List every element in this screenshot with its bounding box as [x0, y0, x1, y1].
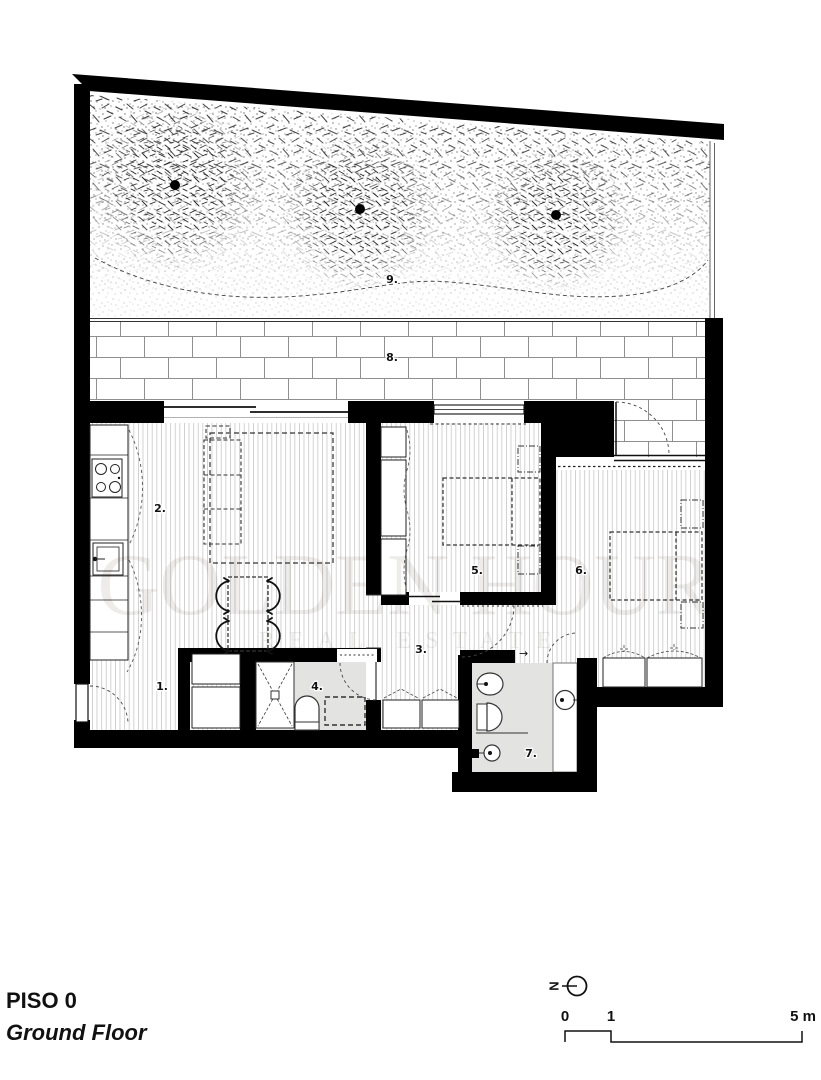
pier-c — [524, 401, 558, 423]
room-label-3: 3. — [415, 643, 427, 656]
room-label-7: 7. — [525, 747, 537, 760]
shower-tray — [256, 662, 294, 728]
toilet — [477, 703, 502, 731]
title-floor-name: Ground Floor — [6, 1020, 148, 1045]
bedroom6-terrace-door — [614, 456, 705, 461]
room-label-4: 4. — [311, 680, 323, 693]
floor-plan-page: → GOLDEN HOUR REAL ESTATE 1. 2. 3. 4. 5.… — [0, 0, 821, 1080]
pier-a — [88, 401, 164, 423]
wall-closet-left — [178, 648, 190, 730]
outer-wall-right — [705, 318, 723, 707]
pier-b — [348, 401, 434, 423]
bath7-wall-right — [577, 658, 597, 792]
scale-tick-0: 0 — [561, 1008, 569, 1025]
title-floor-code: PISO 0 — [6, 988, 77, 1013]
room-label-2: 2. — [154, 502, 166, 515]
scale-tick-1: 1 — [607, 1008, 615, 1025]
room-label-5: 5. — [471, 564, 483, 577]
bath7-wall-bottom — [452, 772, 597, 792]
outer-wall-left — [74, 84, 90, 684]
toilet — [295, 696, 319, 730]
scale-tick-5: 5 m — [790, 1008, 816, 1025]
pier-block — [556, 401, 614, 457]
outer-wall-bottom — [74, 730, 460, 748]
living-sliding-door — [164, 407, 348, 412]
room-label-9: 9. — [386, 273, 398, 286]
tree-icon — [170, 180, 180, 190]
floor-plan-svg: → GOLDEN HOUR REAL ESTATE 1. 2. 3. 4. 5.… — [0, 0, 821, 1080]
room-label-1: 1. — [156, 680, 168, 693]
room6-wall-bottom — [595, 687, 723, 707]
north-arrow: N — [547, 977, 587, 996]
wall-living-hall-lower — [366, 700, 381, 730]
scale-bar-line — [565, 1031, 802, 1042]
north-label: N — [547, 981, 562, 990]
entry-closet — [192, 654, 240, 728]
room-label-6: 6. — [575, 564, 587, 577]
scale-bar: 0 1 5 m — [561, 1008, 816, 1042]
entrance-door-leaf — [76, 684, 88, 722]
title-block: PISO 0 Ground Floor — [6, 988, 148, 1045]
room-label-8: 8. — [386, 351, 398, 364]
watermark-line1: GOLDEN HOUR — [98, 537, 713, 634]
bathroom7-sink-counter — [553, 663, 577, 772]
tree-icon — [355, 204, 365, 214]
tree-icon — [551, 210, 561, 220]
kitchen-stove — [92, 459, 122, 497]
bath7-wall-left — [458, 655, 472, 792]
terrace-top-boundary — [90, 319, 710, 322]
bidet — [477, 673, 503, 695]
watermark-line2: REAL ESTATE — [259, 628, 566, 654]
wall-bath4-left — [240, 648, 256, 730]
garden-right-boundary — [710, 141, 715, 319]
